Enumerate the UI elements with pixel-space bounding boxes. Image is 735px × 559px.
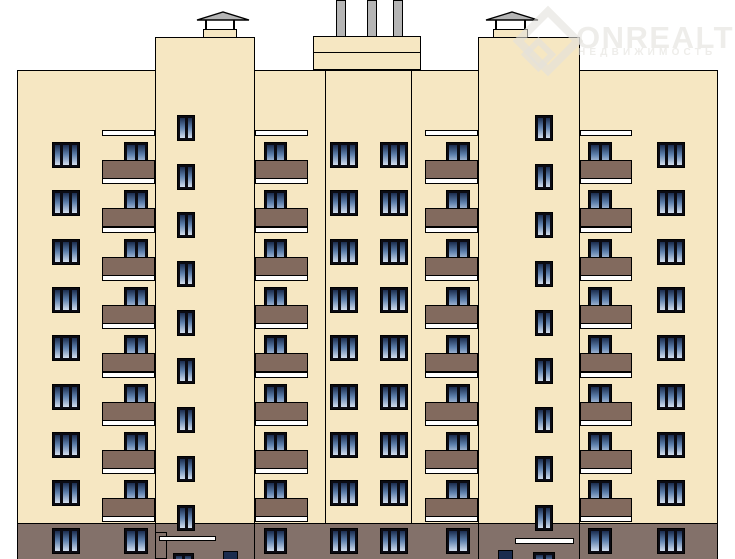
window-pane [180,361,185,381]
window-pane [677,193,682,213]
window-pane [63,387,68,407]
window-triple [380,142,408,168]
window-pane [138,531,146,551]
window-pane [72,338,77,358]
window-pane [400,531,405,551]
window-pane [333,483,338,503]
window-stairwell [177,407,195,433]
window-pane [72,483,77,503]
window-pane [55,483,60,503]
balcony-slab [102,227,155,233]
window-pane [72,145,77,165]
balcony-panel [102,402,155,421]
window-stairwell [535,505,553,531]
window-pane [538,264,543,284]
window-triple [657,190,685,216]
balcony-slab [580,130,632,136]
window-pane [449,531,457,551]
elevation-drawing: ONREALT НЕДВИЖИМОСТЬ [0,0,735,559]
window-triple [330,239,358,265]
balcony-panel [425,402,478,421]
balcony-panel [580,353,632,372]
window-triple [330,287,358,313]
balcony-panel [425,498,478,517]
window-pane [546,118,551,138]
balcony-slab [580,178,632,184]
window-pane [350,483,355,503]
window-pane [546,555,553,559]
stair-tower-right [478,37,580,524]
window-stairwell [177,310,195,336]
balcony-slab [425,323,478,329]
window-triple [380,190,408,216]
window-triple [657,432,685,458]
window-triple [380,239,408,265]
entrance-door [173,553,194,559]
window-pane [668,193,673,213]
window-pane [400,242,405,262]
window-pane [400,483,405,503]
window-triple [52,190,80,216]
tower-edge-line [254,523,255,559]
balcony-slab [102,130,155,136]
window-pane [538,313,543,333]
window-pane [546,313,551,333]
window-pane [55,387,60,407]
window-triple [657,239,685,265]
entrance-door [533,552,555,559]
window-pane [400,290,405,310]
window-pane [63,338,68,358]
balcony-slab [102,420,155,426]
window-pane [391,387,396,407]
balcony-panel [580,402,632,421]
window-pane [333,193,338,213]
window-triple [330,190,358,216]
balcony-slab [580,516,632,522]
balcony-panel [425,353,478,372]
balcony-slab [255,130,308,136]
window-pane [383,193,388,213]
window-pane [400,338,405,358]
window-pane [180,508,185,528]
balcony-panel [255,450,308,469]
balcony-panel [255,402,308,421]
window-triple [330,384,358,410]
watermark-tagline: НЕДВИЖИМОСТЬ [578,47,716,58]
window-pane [341,435,346,455]
balcony-panel [425,450,478,469]
window-pane [677,531,682,551]
window-triple [52,432,80,458]
balcony-panel [102,257,155,276]
balcony-slab [580,323,632,329]
window-stairwell [535,407,553,433]
window-pane [391,193,396,213]
window-pane [391,242,396,262]
window-pane [546,459,551,479]
vent-box [203,29,237,38]
window-triple [330,335,358,361]
window-pane [400,387,405,407]
window-pane [538,361,543,381]
balcony-panel [102,450,155,469]
window-stairwell [177,164,195,190]
roof-pipe [393,0,403,37]
balcony-slab [425,516,478,522]
window-pane [460,531,468,551]
window-pane [546,215,551,235]
window-pane [538,167,543,187]
window-balcony [588,528,612,554]
window-pane [63,483,68,503]
window-pane [546,508,551,528]
window-pane [677,338,682,358]
window-pane [180,118,185,138]
window-pane [538,459,543,479]
window-stairwell [535,164,553,190]
window-pane [660,435,665,455]
window-pane [333,338,338,358]
window-pane [333,145,338,165]
window-pane [400,435,405,455]
window-pane [333,387,338,407]
window-pane [660,242,665,262]
window-pane [341,193,346,213]
window-pane [333,435,338,455]
balcony-panel [102,208,155,227]
window-triple [330,432,358,458]
window-pane [341,483,346,503]
window-pane [677,483,682,503]
window-pane [333,531,338,551]
window-pane [350,338,355,358]
window-pane [350,290,355,310]
window-triple [657,335,685,361]
window-pane [63,193,68,213]
window-pane [660,531,665,551]
window-pane [677,145,682,165]
vent-roof-icon [485,11,539,21]
window-pane [668,387,673,407]
basement-window [223,551,238,559]
window-triple [52,528,80,554]
window-pane [180,410,185,430]
window-pane [591,531,599,551]
window-pane [350,435,355,455]
balcony-slab [102,178,155,184]
window-pane [677,290,682,310]
window-pane [660,193,665,213]
balcony-slab [102,323,155,329]
window-pane [72,435,77,455]
window-stairwell [177,505,195,531]
window-triple [52,239,80,265]
window-pane [341,531,346,551]
watermark-brand: ONREALT [576,20,734,56]
window-pane [400,145,405,165]
balcony-panel [102,160,155,179]
roof-parapet [313,36,421,70]
balcony-slab [580,275,632,281]
balcony-panel [102,353,155,372]
balcony-panel [425,160,478,179]
balcony-slab [425,420,478,426]
window-triple [330,528,358,554]
window-pane [63,290,68,310]
window-pane [538,215,543,235]
window-stairwell [177,115,195,141]
ground-floor-band [17,523,718,559]
window-balcony [264,528,287,554]
window-triple [52,335,80,361]
balcony-slab [255,275,308,281]
balcony-panel [580,305,632,324]
window-pane [546,264,551,284]
balcony-slab [255,420,308,426]
balcony-slab [580,420,632,426]
window-pane [538,118,543,138]
window-stairwell [177,358,195,384]
window-pane [677,387,682,407]
window-stairwell [535,310,553,336]
window-stairwell [535,212,553,238]
balcony-panel [425,305,478,324]
window-pane [188,508,193,528]
balcony-panel [580,160,632,179]
window-pane [72,242,77,262]
window-pane [668,338,673,358]
window-triple [380,528,408,554]
facade-joint-line [411,70,412,559]
window-pane [63,435,68,455]
balcony-slab [102,372,155,378]
window-triple [380,287,408,313]
window-pane [63,145,68,165]
window-pane [668,483,673,503]
window-pane [72,290,77,310]
basement-window [498,550,513,559]
window-pane [55,290,60,310]
window-pane [538,508,543,528]
window-balcony [124,528,148,554]
window-triple [380,480,408,506]
roof-pipe [367,0,377,37]
window-pane [72,387,77,407]
balcony-panel [255,160,308,179]
window-pane [660,338,665,358]
window-pane [350,145,355,165]
entrance-canopy [159,536,216,541]
window-pane [391,145,396,165]
window-triple [52,287,80,313]
window-pane [391,435,396,455]
window-pane [677,242,682,262]
balcony-panel [102,498,155,517]
window-pane [350,387,355,407]
window-pane [55,242,60,262]
window-pane [383,145,388,165]
window-triple [52,480,80,506]
balcony-slab [102,468,155,474]
balcony-slab [255,323,308,329]
balcony-panel [580,498,632,517]
window-pane [383,338,388,358]
window-stairwell [535,261,553,287]
balcony-slab [255,227,308,233]
window-pane [546,361,551,381]
window-pane [668,531,673,551]
window-pane [72,193,77,213]
window-pane [383,290,388,310]
balcony-panel [255,353,308,372]
window-pane [383,387,388,407]
stair-tower-left [155,37,255,524]
window-pane [383,242,388,262]
balcony-panel [255,305,308,324]
window-pane [400,193,405,213]
window-triple [657,287,685,313]
window-pane [668,290,673,310]
balcony-slab [580,468,632,474]
balcony-slab [255,516,308,522]
window-stairwell [177,456,195,482]
window-pane [333,242,338,262]
window-pane [55,531,60,551]
window-triple [380,384,408,410]
balcony-slab [425,468,478,474]
balcony-slab [580,372,632,378]
window-pane [341,290,346,310]
window-pane [188,410,193,430]
window-triple [52,384,80,410]
window-triple [657,528,685,554]
window-pane [391,531,396,551]
balcony-panel [255,208,308,227]
balcony-slab [425,227,478,233]
window-pane [660,387,665,407]
balcony-panel [255,257,308,276]
window-pane [188,215,193,235]
window-pane [536,555,543,559]
window-pane [55,338,60,358]
window-pane [333,290,338,310]
window-pane [63,531,68,551]
window-pane [538,410,543,430]
window-triple [52,142,80,168]
window-pane [188,361,193,381]
balcony-slab [580,227,632,233]
window-pane [127,531,135,551]
roof-parapet-line [313,52,421,53]
window-pane [180,313,185,333]
balcony-panel [580,450,632,469]
window-pane [350,531,355,551]
window-pane [341,387,346,407]
window-pane [391,290,396,310]
window-pane [602,531,610,551]
balcony-slab [425,178,478,184]
window-triple [657,384,685,410]
window-pane [180,264,185,284]
window-pane [660,145,665,165]
balcony-slab [255,372,308,378]
window-pane [55,435,60,455]
window-pane [341,145,346,165]
window-pane [188,313,193,333]
window-triple [657,142,685,168]
entrance-canopy [515,538,574,544]
balcony-slab [425,372,478,378]
window-pane [277,531,284,551]
window-pane [341,338,346,358]
window-pane [188,459,193,479]
window-pane [188,167,193,187]
window-pane [55,145,60,165]
window-pane [180,459,185,479]
window-triple [657,480,685,506]
window-stairwell [177,212,195,238]
tower-edge-line [579,523,580,559]
window-pane [350,242,355,262]
balcony-slab [425,130,478,136]
window-pane [188,264,193,284]
balcony-slab [255,468,308,474]
window-pane [188,118,193,138]
balcony-slab [425,275,478,281]
window-stairwell [177,261,195,287]
window-pane [383,483,388,503]
window-pane [677,435,682,455]
roof-pipe [336,0,346,37]
window-pane [383,435,388,455]
balcony-slab [255,178,308,184]
window-pane [180,215,185,235]
balcony-slab [102,516,155,522]
window-pane [668,145,673,165]
balcony-panel [102,305,155,324]
window-pane [668,242,673,262]
window-stairwell [535,456,553,482]
window-triple [380,335,408,361]
window-pane [63,242,68,262]
window-pane [660,290,665,310]
window-triple [330,142,358,168]
tower-edge-line [478,523,479,559]
window-pane [668,435,673,455]
window-pane [180,167,185,187]
window-pane [391,338,396,358]
window-pane [660,483,665,503]
window-pane [546,167,551,187]
window-balcony [446,528,470,554]
window-triple [330,480,358,506]
balcony-panel [580,257,632,276]
window-pane [267,531,274,551]
balcony-panel [425,208,478,227]
window-pane [350,193,355,213]
balcony-panel [425,257,478,276]
window-triple [380,432,408,458]
window-pane [55,193,60,213]
window-pane [72,531,77,551]
window-pane [391,483,396,503]
window-pane [546,410,551,430]
window-pane [341,242,346,262]
facade-joint-line [325,70,326,559]
balcony-panel [580,208,632,227]
balcony-slab [102,275,155,281]
